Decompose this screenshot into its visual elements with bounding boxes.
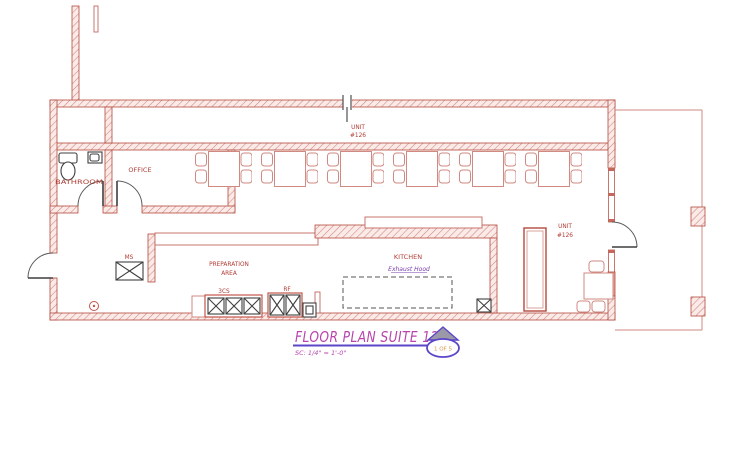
prep-left-wall [148,234,155,282]
window-mullion [608,168,615,171]
block-south-wall-a [50,206,78,213]
chair [577,301,590,312]
left-wall-upper [50,100,57,253]
water-heater [303,303,316,317]
floor-plan-drawing: BATHROOM OFFICE UNIT #126 UNIT #126 PREP… [0,0,748,458]
prep-area-label-line1: PREPARATION [209,262,249,268]
unit-right-label-line1: UNIT [558,224,572,230]
window-mullion [608,250,615,253]
office-label: OFFICE [128,166,151,174]
drawing-title: FLOOR PLAN SUITE 126 [295,328,447,346]
bathroom-label: BATHROOM [55,178,103,186]
upper-wall-stub [94,6,98,32]
floor-drain-center [93,305,95,307]
chair [592,301,605,312]
right-wall-bottom [608,296,615,320]
upper-demising-wall [72,6,79,102]
bathroom-office-divider [105,150,112,213]
kitchen-pass-counter [365,217,482,228]
corridor-divider-wall [105,107,112,143]
neighbor-column-upper [691,207,705,226]
bottom-wall [50,313,615,320]
scale-note: SC: 1/4" = 1'-0" [295,349,346,357]
refrigerator-unit [268,293,302,317]
unit-top-label-line1: UNIT [351,125,365,131]
refrigerator-label: RF [283,287,290,293]
north-suite-wall [50,143,615,150]
floor-plan-canvas: BATHROOM OFFICE UNIT #126 UNIT #126 PREP… [0,0,748,458]
window-mullion [608,193,615,196]
block-south-wall-c [142,206,235,213]
mop-sink-label: MS [125,255,134,261]
block-south-wall-b [103,206,117,213]
exterior-top-wall [50,100,615,107]
prep-area-label-line2: AREA [221,271,237,277]
three-comp-sink-label: 3CS [218,289,230,295]
table [584,273,613,299]
prep-counter [155,233,318,245]
chair [589,261,604,272]
right-wall-upper [608,100,615,168]
unit-top-label-line2: #126 [350,133,366,139]
kitchen-label: KITCHEN [394,253,422,261]
neighbor-column-lower [691,297,705,316]
unit-right-label-line2: #126 [557,233,573,239]
window-mullion [608,219,615,222]
exhaust-hood-label: Exhaust Hood [388,266,430,273]
title-bubble-text: 1 OF 5 [434,347,452,353]
counter-stub [192,296,205,317]
